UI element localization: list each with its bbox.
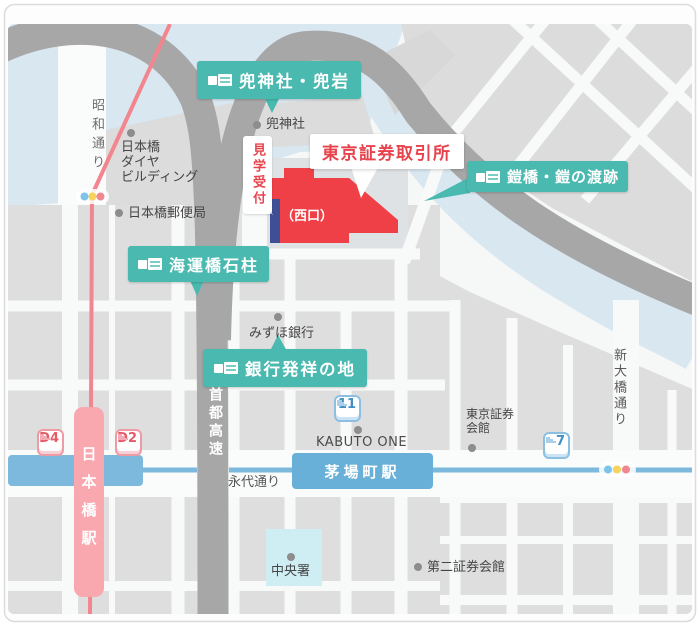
exit-marker-7: 7: [543, 432, 570, 459]
plaque-icon: [138, 256, 162, 272]
poi-daiya-building: 日本橋 ダイヤ ビルディング: [121, 140, 198, 185]
spot-label-bank-birthplace: 銀行発祥の地: [203, 349, 367, 387]
spot-label-text: 鎧橋・鎧の渡跡: [507, 166, 619, 187]
nihombashi-station-label: 日本橋駅: [74, 407, 104, 597]
poi-chuo-police: 中央署: [271, 564, 310, 579]
plaque-icon: [208, 72, 232, 88]
road-showa-dori: 昭和通り: [87, 98, 106, 174]
plaque-icon: [476, 169, 500, 185]
spot-label-kabuto-shrine: 兜神社・兜岩: [197, 61, 361, 99]
poi-line: ダイヤ: [121, 155, 198, 170]
stairs-icon: [39, 431, 51, 441]
spot-label-kaiunbashi: 海運橋石柱: [128, 246, 269, 282]
kayabacho-station-label: 茅場町駅: [292, 453, 433, 489]
poi-line: ビルディング: [121, 170, 198, 185]
poi-mizuho-bank: みずほ銀行: [249, 326, 314, 341]
poi-line: 会館: [466, 421, 514, 435]
exit-marker-d2: D2: [115, 429, 142, 456]
poi-daini-shoken-kaikan: 第二証券会館: [427, 560, 505, 575]
stairs-icon: [336, 397, 348, 407]
poi-kabuto-one: KABUTO ONE: [316, 435, 407, 450]
spot-label-text: 海運橋石柱: [169, 252, 259, 276]
west-exit-label: （西口）: [281, 205, 333, 224]
stairs-icon: [117, 431, 129, 441]
spot-label-text: 銀行発祥の地: [245, 356, 356, 380]
poi-post-office: 日本橋郵便局: [128, 206, 206, 221]
plaque-icon: [214, 360, 238, 376]
road-shin-ohashi-dori: 新大橋通り: [609, 348, 628, 428]
exit-number: 7: [556, 434, 565, 449]
road-eitai-dori: 永代通り: [228, 471, 280, 490]
poi-shoken-kaikan: 東京証券 会館: [466, 407, 514, 435]
poi-line: 東京証券: [466, 407, 514, 421]
visitor-reception-label: 見学受付: [243, 136, 272, 214]
poi-kabuto-shrine: 兜神社: [266, 117, 305, 132]
spot-label-yoroibashi: 鎧橋・鎧の渡跡: [467, 161, 628, 192]
map-page: 兜神社・兜岩 鎧橋・鎧の渡跡 海運橋石柱 銀行発祥の地 東京証券取引所 見学受付…: [0, 0, 700, 626]
road-shuto-expressway: 首都高速: [205, 387, 225, 459]
exit-marker-11: 11: [334, 395, 361, 422]
poi-line: 日本橋: [121, 140, 198, 155]
stairs-icon: [545, 434, 557, 444]
spot-label-text: 兜神社・兜岩: [239, 68, 350, 92]
tse-title-label: 東京証券取引所: [310, 134, 464, 169]
exit-marker-d4: D4: [37, 429, 64, 456]
